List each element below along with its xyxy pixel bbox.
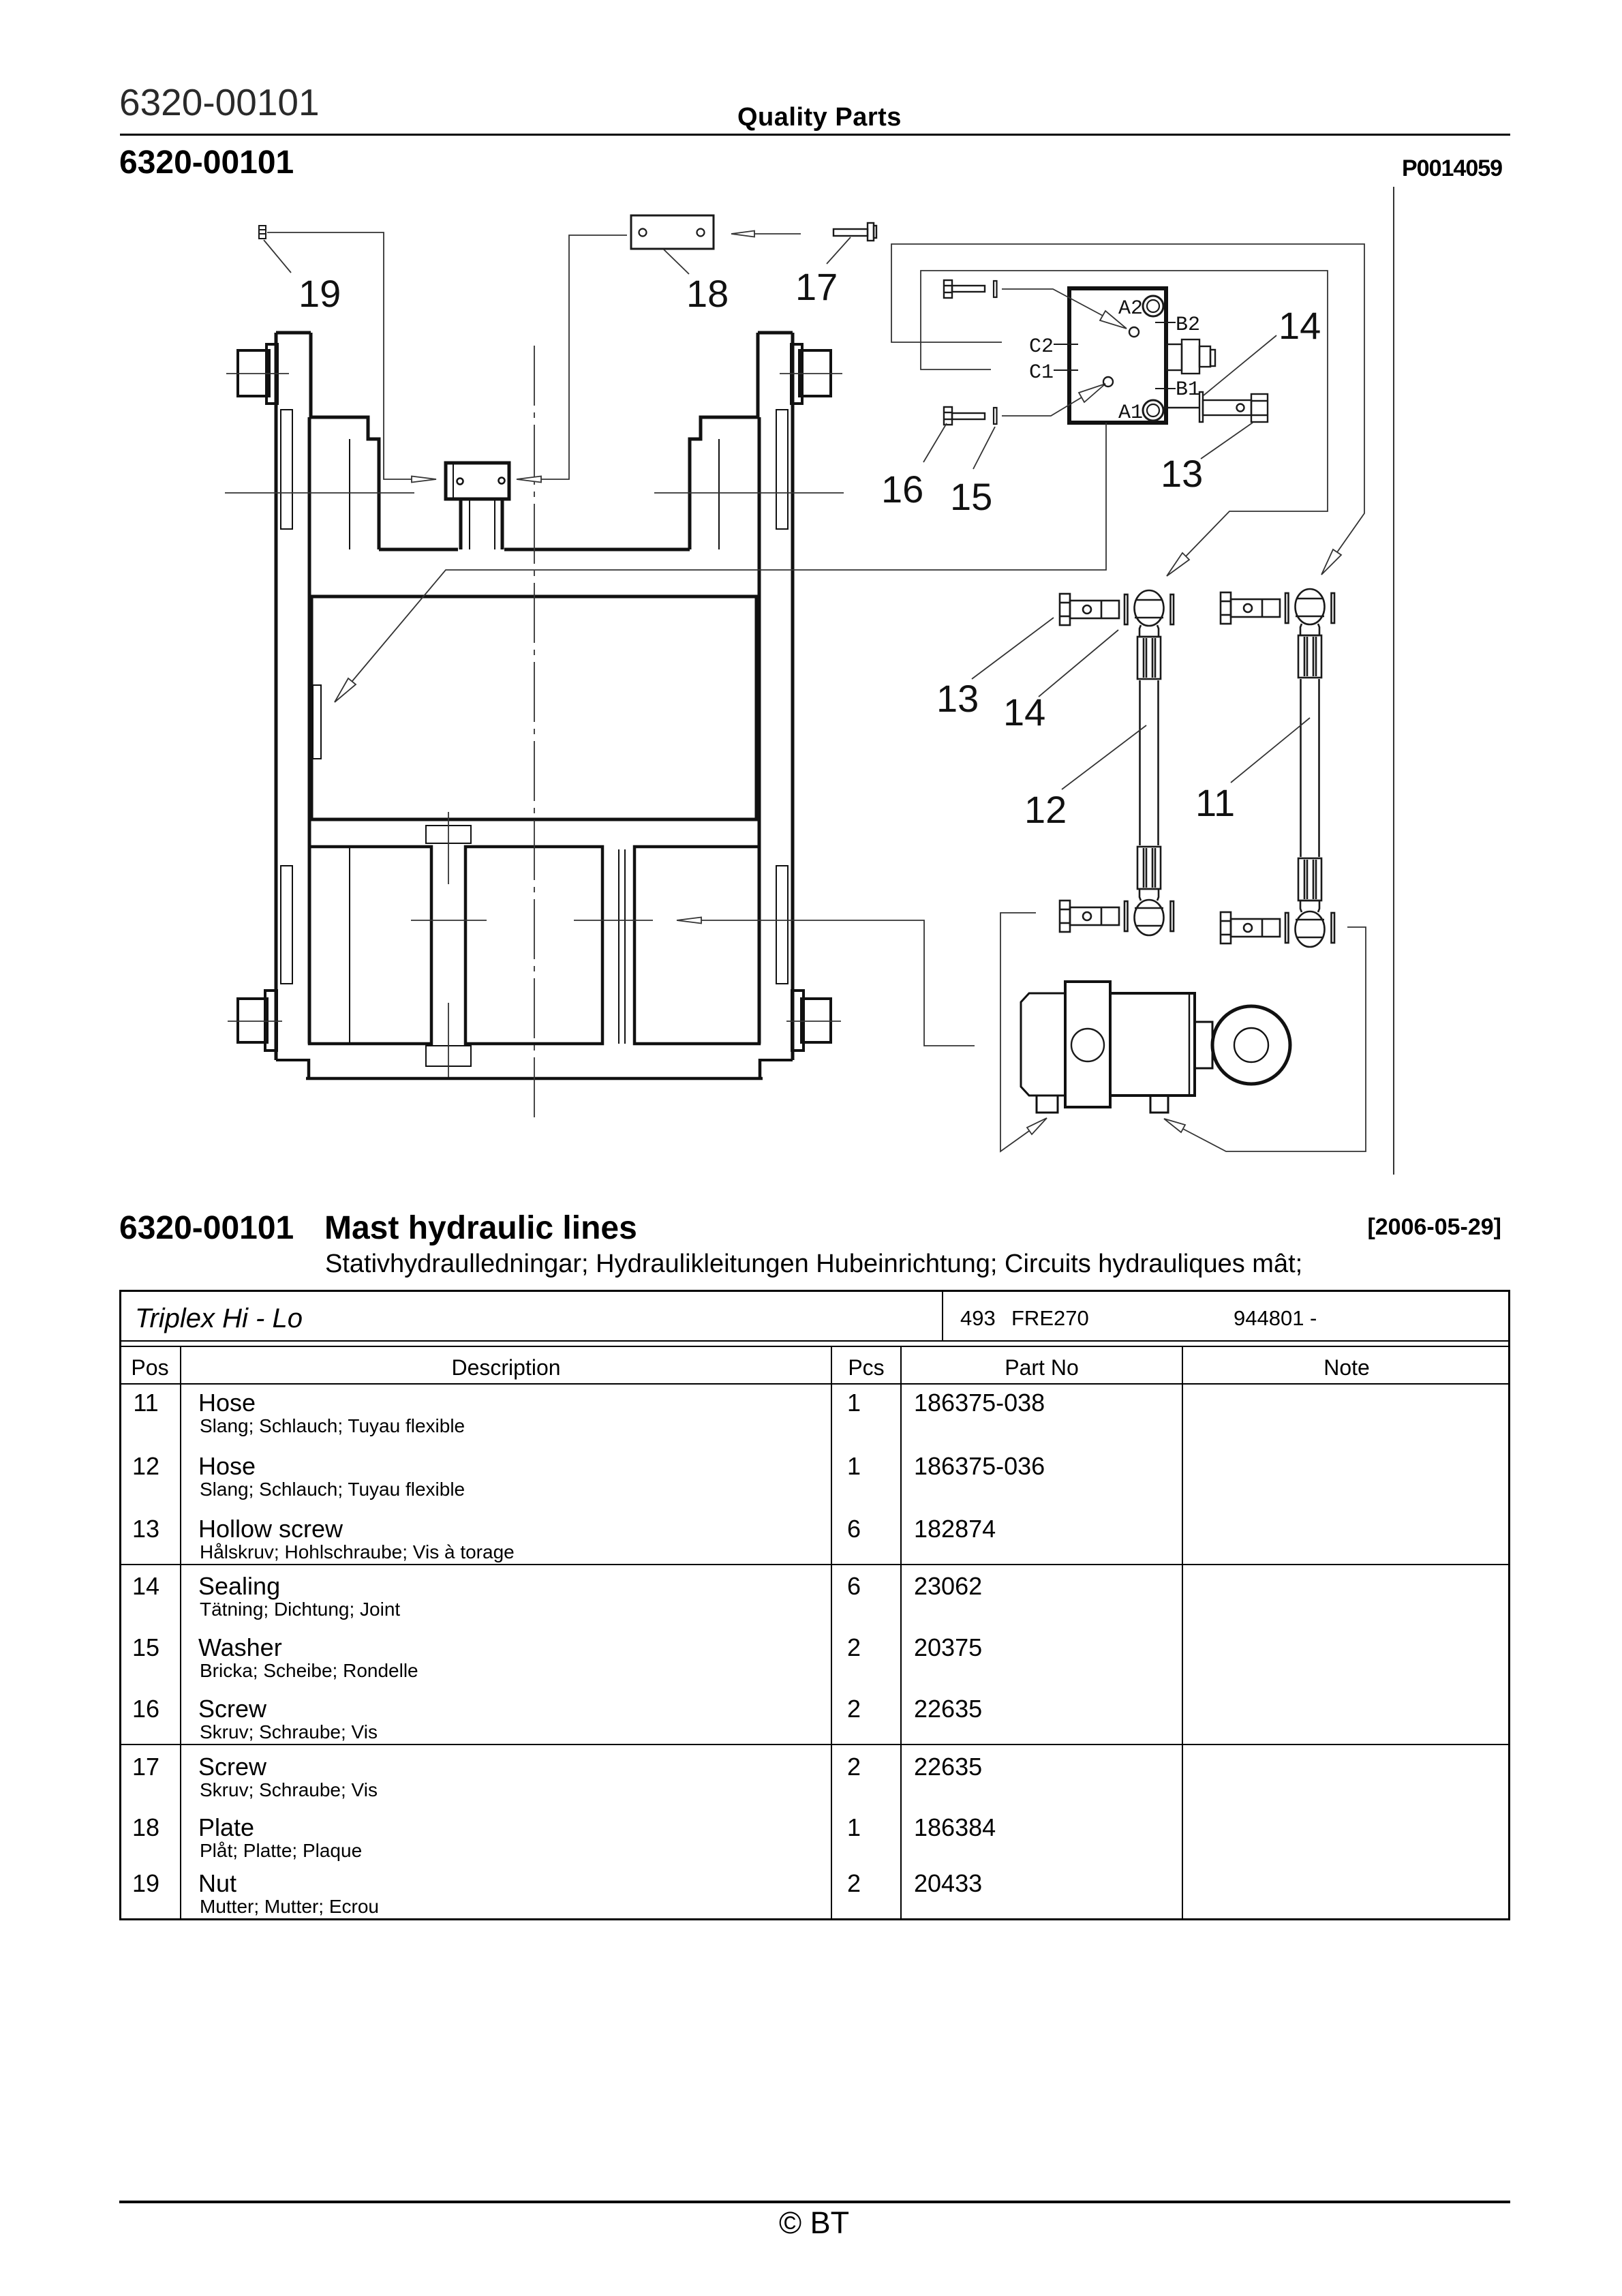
svg-text:16: 16 [881,468,923,511]
svg-text:15: 15 [950,475,992,518]
svg-text:11: 11 [1195,781,1235,824]
svg-text:A2: A2 [1118,297,1143,320]
svg-text:18: 18 [686,272,729,315]
svg-text:B1: B1 [1176,378,1200,402]
svg-text:17: 17 [795,265,838,308]
svg-text:13: 13 [1161,452,1203,495]
svg-text:19: 19 [299,272,341,315]
svg-text:C1: C1 [1029,361,1054,384]
svg-text:14: 14 [1279,304,1321,347]
svg-text:13: 13 [936,677,979,720]
svg-text:12: 12 [1024,788,1067,831]
svg-text:14: 14 [1003,691,1045,734]
svg-text:A1: A1 [1118,402,1143,425]
svg-text:C2: C2 [1029,335,1054,359]
svg-text:B2: B2 [1176,314,1200,337]
